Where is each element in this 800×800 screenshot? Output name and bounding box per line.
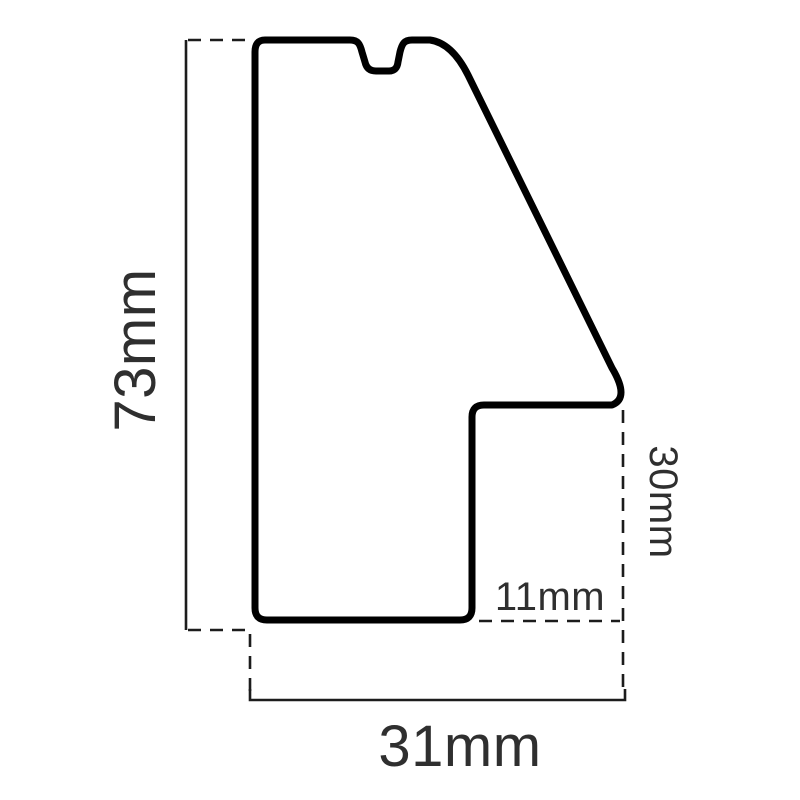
height-dimension-label: 73mm (107, 268, 165, 431)
right-height-dimension-label: 30mm (643, 445, 683, 558)
width-dimension-label: 31mm (378, 718, 541, 776)
technical-drawing-canvas: 73mm 31mm 30mm 11mm (0, 0, 800, 800)
profile-outline (255, 40, 621, 620)
inset-dimension-label: 11mm (495, 577, 605, 617)
width-dimension-bracket (250, 689, 625, 700)
